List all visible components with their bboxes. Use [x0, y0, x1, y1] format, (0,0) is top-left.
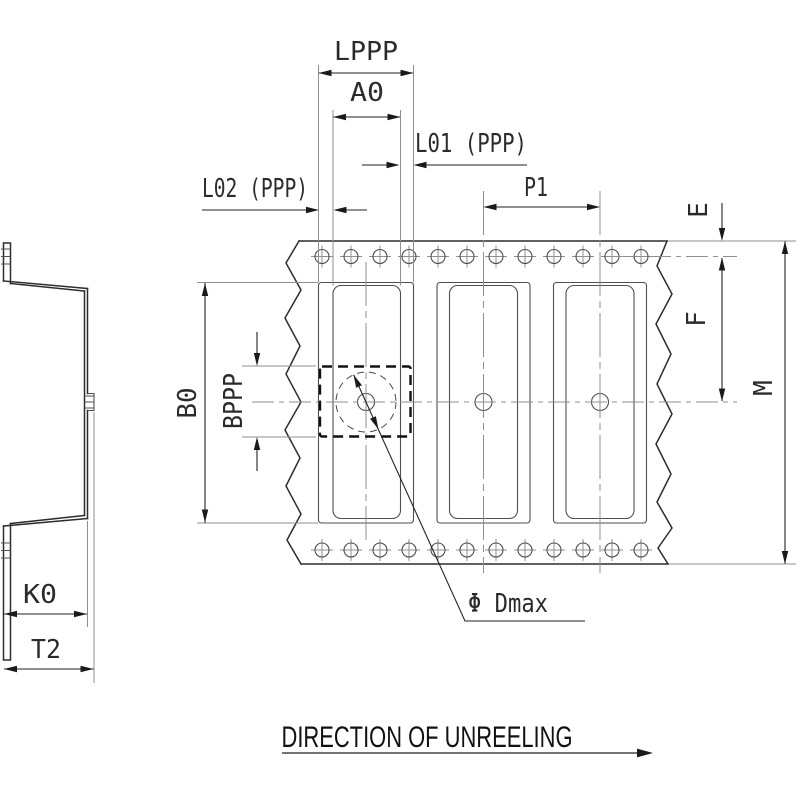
direction-of-unreeling-text: DIRECTION OF UNREELING: [282, 721, 573, 754]
label-a0: A0: [350, 78, 384, 108]
sprocket-hole: [311, 539, 333, 561]
arrowhead: [202, 283, 208, 296]
tape-and-reel-dimension-drawing: LPPP A0 L01 (PPP) L02 (PPP) P1 E F: [0, 0, 800, 800]
sprocket-hole: [601, 539, 623, 561]
label-e: E: [684, 202, 714, 218]
dimension-p1: P1: [484, 173, 601, 210]
dimension-a0: A0: [333, 78, 401, 120]
label-k0: K0: [23, 580, 57, 610]
unreeling-arrowhead: [637, 749, 653, 758]
pockets: [319, 283, 647, 524]
sprocket-hole: [456, 246, 478, 268]
label-l02: L02 (PPP): [202, 174, 308, 204]
arrowhead: [354, 375, 362, 388]
arrowhead: [319, 70, 332, 76]
arrowhead: [202, 510, 208, 523]
arrowhead: [484, 204, 497, 210]
sprocket-holes: [311, 246, 652, 562]
arrowhead: [587, 204, 600, 210]
label-dmax: Φ Dmax: [468, 589, 548, 619]
sprocket-hole: [340, 246, 362, 268]
side-bottom-flange: [4, 524, 11, 661]
dimension-m: M: [749, 241, 788, 564]
sprocket-hole: [311, 246, 333, 268]
dimension-e: E: [684, 202, 725, 241]
unreeling-direction: DIRECTION OF UNREELING: [282, 721, 654, 757]
sprocket-hole: [427, 539, 449, 561]
arrowhead: [388, 114, 401, 120]
arrowhead: [414, 162, 427, 168]
label-bppp: BPPP: [219, 373, 249, 429]
sprocket-hole: [369, 539, 391, 561]
arrowhead: [719, 258, 725, 271]
arrowhead: [254, 437, 260, 450]
extension-lines: [88, 65, 414, 683]
side-bottom-sprocket-hole-ticks: [1, 543, 11, 558]
dmax-leader-line: [354, 375, 585, 621]
arrowhead: [387, 162, 400, 168]
dimension-k0: K0: [4, 580, 87, 617]
sprocket-hole: [630, 539, 652, 561]
dimension-b0: B0: [173, 283, 208, 523]
label-t2: T2: [31, 635, 61, 665]
side-center-hole-bump: [85, 394, 95, 411]
dimension-f: F: [682, 258, 725, 402]
sprocket-hole: [514, 246, 536, 268]
sprocket-hole: [369, 246, 391, 268]
sprocket-hole: [340, 539, 362, 561]
dimension-dmax: Φ Dmax: [354, 375, 585, 621]
dimension-lppp: LPPP: [319, 37, 414, 76]
sprocket-hole: [456, 539, 478, 561]
sprocket-hole: [485, 246, 507, 268]
sprocket-hole: [572, 539, 594, 561]
dimension-l01: L01 (PPP): [362, 129, 527, 168]
drawing-canvas: LPPP A0 L01 (PPP) L02 (PPP) P1 E F: [0, 0, 800, 800]
arrowhead: [719, 228, 725, 241]
side-pocket-top-wall: [4, 281, 88, 291]
arrowhead: [782, 241, 788, 254]
label-lppp: LPPP: [334, 37, 398, 67]
label-f: F: [682, 311, 712, 327]
side-pocket-bottom-face: [85, 289, 88, 519]
sprocket-hole: [485, 539, 507, 561]
sprocket-hole: [427, 246, 449, 268]
sprocket-hole: [398, 246, 420, 268]
arrowhead: [401, 70, 414, 76]
arrowhead: [370, 416, 378, 429]
arrowhead: [254, 353, 260, 366]
arrowhead: [81, 666, 94, 672]
arrowhead: [782, 551, 788, 564]
sprocket-hole: [572, 246, 594, 268]
sprocket-hole: [543, 539, 565, 561]
label-m: M: [749, 380, 779, 396]
arrowhead: [4, 666, 17, 672]
arrowhead: [334, 207, 347, 213]
sprocket-hole: [398, 539, 420, 561]
label-p1: P1: [524, 173, 548, 203]
label-b0: B0: [173, 387, 203, 418]
arrowhead: [719, 389, 725, 402]
a0-extension-lines: [333, 110, 401, 286]
side-pocket-bottom-wall: [4, 516, 88, 527]
arrowhead: [333, 114, 346, 120]
side-top-sprocket-hole-ticks: [1, 249, 11, 264]
dimension-l02: L02 (PPP): [202, 174, 367, 213]
sprocket-hole: [514, 539, 536, 561]
sprocket-hole: [543, 246, 565, 268]
dimension-t2: T2: [4, 635, 94, 672]
arrowhead: [306, 207, 319, 213]
label-l01: L01 (PPP): [415, 129, 527, 159]
arrowhead: [74, 611, 87, 617]
